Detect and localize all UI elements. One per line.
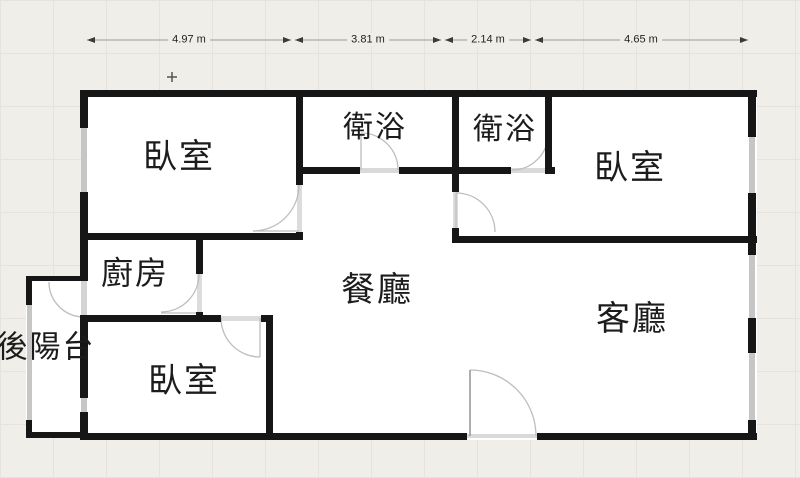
crosshair-mark	[167, 72, 177, 82]
room-label-kitchen: 廚房	[101, 257, 169, 289]
room-label-bedroom-right: 臥室	[594, 151, 666, 185]
dimension-label-3: 2.14 m	[467, 33, 509, 46]
balcony-door-opening	[81, 281, 87, 315]
floorplan-drawing	[0, 0, 800, 478]
dimension-label-2: 3.81 m	[347, 33, 389, 46]
window-left-bottom	[81, 398, 87, 412]
room-label-living-room: 客廳	[596, 302, 668, 336]
dimension-label-1: 4.97 m	[168, 33, 210, 46]
room-label-back-balcony: 後陽台	[0, 332, 96, 363]
room-label-bedroom-bottom-left: 臥室	[148, 364, 220, 398]
room-label-bedroom-top-left: 臥室	[143, 140, 215, 174]
room-label-bathroom-right: 衛浴	[473, 115, 537, 145]
window-right-3	[749, 353, 755, 420]
floorplan-canvas: 4.97 m 3.81 m 2.14 m 4.65 m 臥室 衛浴 衛浴 臥室 …	[0, 0, 800, 478]
room-label-bathroom-left: 衛浴	[343, 113, 407, 143]
window-left-top	[81, 128, 87, 192]
dimension-label-4: 4.65 m	[620, 33, 662, 46]
window-right-1	[749, 137, 755, 193]
room-label-dining-room: 餐廳	[341, 273, 413, 307]
window-right-2	[749, 255, 755, 318]
